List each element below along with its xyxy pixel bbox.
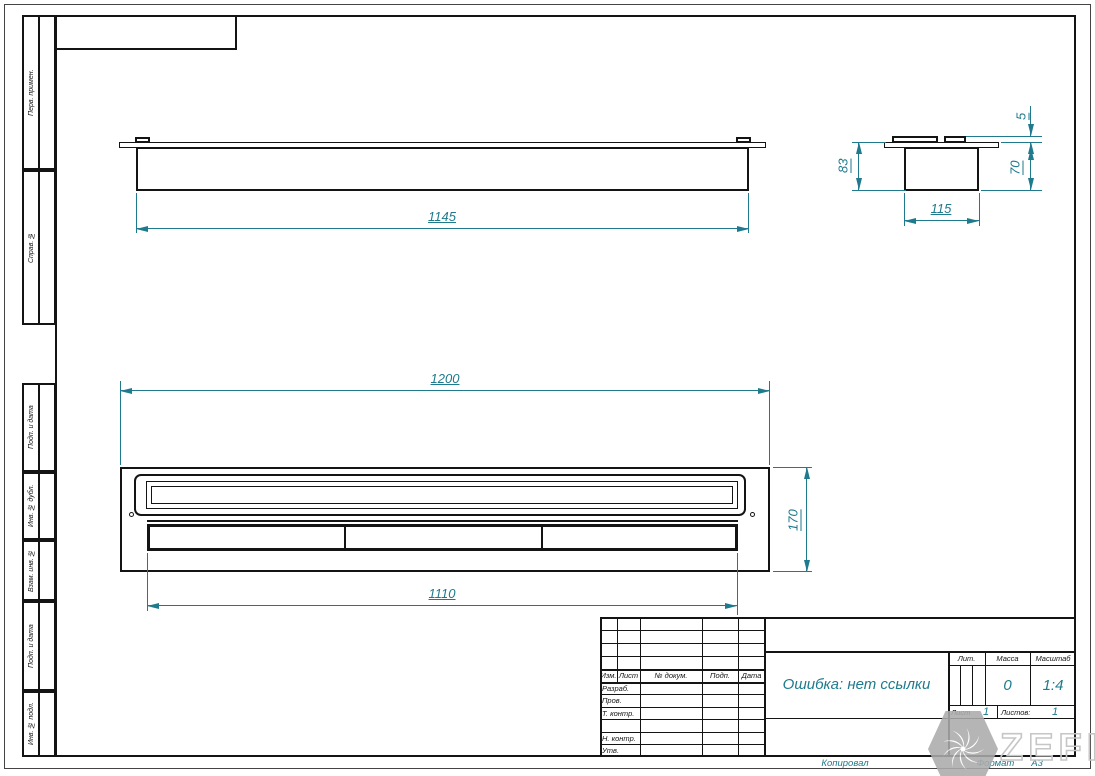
line: [600, 656, 765, 657]
dim-line: [147, 605, 738, 606]
line: [765, 718, 1076, 719]
screw-hole-right: [750, 512, 755, 517]
dim-side-body-height: 70: [1008, 148, 1022, 188]
ext-line: [966, 136, 1042, 137]
margin-block-inv-dubl: Инв. № дубл.: [22, 472, 56, 540]
arrow-icon: [737, 226, 749, 232]
row-nkontr: Н. контр.: [602, 734, 636, 743]
line: [600, 694, 765, 695]
line: [738, 617, 739, 757]
row-razrab: Разраб.: [602, 684, 629, 693]
ext-line: [979, 193, 980, 226]
col-data: Дата: [738, 669, 765, 682]
ext-line: [981, 190, 1042, 191]
line: [972, 665, 973, 705]
margin-block-vzam-inv: Взам. инв. №: [22, 540, 56, 601]
arrow-icon: [856, 142, 862, 154]
swirl-icon: [940, 726, 986, 772]
arrow-icon: [120, 388, 132, 394]
arrow-icon: [1028, 124, 1034, 136]
front-tab-left: [135, 137, 150, 143]
line: [600, 744, 765, 745]
line: [640, 617, 641, 757]
side-body: [904, 147, 979, 191]
designation-text: Ошибка: нет ссылки: [765, 651, 948, 718]
front-tab-right: [736, 137, 751, 143]
ext-line: [769, 381, 770, 465]
dim-side-total-height: 83: [836, 146, 850, 186]
plan-tray: [147, 524, 738, 551]
margin-label: Справ. №: [24, 172, 39, 323]
front-body: [136, 147, 749, 191]
arrow-icon: [967, 218, 979, 224]
dim-plan-height: 170: [786, 499, 800, 541]
mass-value: 0: [985, 665, 1030, 705]
dim-tray-width: 1110: [412, 586, 472, 601]
line: [600, 630, 765, 631]
tray-divider: [344, 525, 346, 550]
sheets-label: Листов:: [1001, 708, 1030, 717]
dim-side-top-gap: 5: [1014, 102, 1028, 130]
arrow-icon: [147, 603, 159, 609]
col-ndokum: № докум.: [640, 669, 702, 682]
margin-label: Подп. и дата: [24, 385, 39, 470]
margin-label: Взам. инв. №: [24, 542, 39, 599]
plan-slot-inner: [151, 486, 733, 504]
dim-line: [120, 390, 770, 391]
margin-block-perv-primen: Перв. примен.: [22, 15, 56, 170]
zefire-watermark-text: ZEFIRE: [1000, 727, 1095, 770]
margin-label: Подп. и дата: [24, 603, 39, 689]
arrow-icon: [136, 226, 148, 232]
arrow-icon: [1028, 148, 1034, 160]
margin-label: Инв. № подл.: [24, 693, 39, 755]
arrow-icon: [1028, 178, 1034, 190]
dim-side-width: 115: [921, 201, 961, 216]
margin-block-podp-data-2: Подп. и дата: [22, 601, 56, 691]
side-plate-right: [944, 136, 966, 143]
mass-label: Масса: [985, 651, 1030, 665]
margin-block-podp-data-1: Подп. и дата: [22, 383, 56, 472]
scale-label: Масштаб: [1030, 651, 1076, 665]
col-izm: Изм.: [600, 669, 617, 682]
top-left-stamp-box: [55, 15, 237, 50]
arrow-icon: [804, 560, 810, 572]
sheets-value: 1: [1052, 706, 1058, 718]
dim-plan-width: 1200: [415, 371, 475, 386]
drawing-sheet: Перв. примен. Справ. № Подп. и дата Инв.…: [0, 0, 1095, 776]
side-plate-left: [892, 136, 938, 143]
row-utv: Утв.: [602, 746, 619, 755]
arrow-icon: [904, 218, 916, 224]
screw-hole-left: [129, 512, 134, 517]
line: [997, 705, 998, 718]
scale-value: 1:4: [1030, 665, 1076, 705]
margin-label: Перв. примен.: [24, 17, 39, 168]
copied-label: Копировал: [810, 758, 880, 769]
col-list: Лист: [617, 669, 640, 682]
margin-block-inv-podl: Инв. № подл.: [22, 691, 56, 757]
line: [960, 665, 961, 705]
line: [600, 707, 765, 708]
line: [702, 617, 703, 757]
margin-label: Инв. № дубл.: [24, 474, 39, 538]
tray-divider: [541, 525, 543, 550]
sheet-value: 1: [983, 706, 989, 718]
lit-label: Лит.: [948, 651, 985, 665]
line: [600, 732, 765, 733]
tray-top-edge: [147, 520, 738, 522]
row-tkontr: Т. контр.: [602, 709, 634, 718]
ext-line: [1001, 142, 1042, 143]
arrow-icon: [758, 388, 770, 394]
row-prov: Пров.: [602, 696, 622, 705]
ext-line: [852, 190, 906, 191]
dim-front-width: 1145: [412, 209, 472, 224]
ext-line: [120, 381, 121, 465]
col-podp: Подп.: [702, 669, 738, 682]
arrow-icon: [804, 467, 810, 479]
line: [600, 643, 765, 644]
arrow-icon: [725, 603, 737, 609]
line: [600, 719, 765, 720]
arrow-icon: [856, 178, 862, 190]
dim-line: [806, 467, 807, 572]
dim-line: [136, 228, 749, 229]
margin-block-sprav: Справ. №: [22, 170, 56, 325]
